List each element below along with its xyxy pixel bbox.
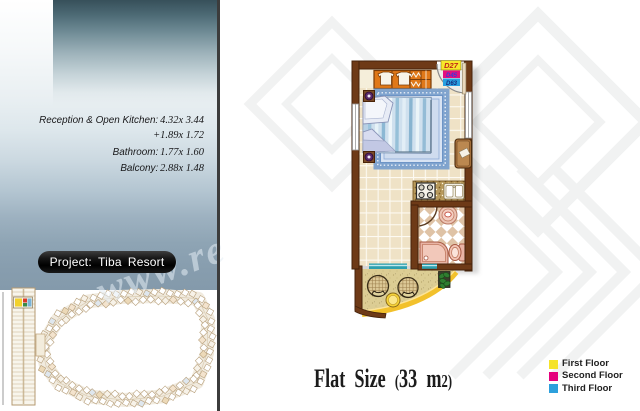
svg-text:D27: D27 <box>444 61 459 70</box>
svg-text:D45: D45 <box>446 73 458 79</box>
svg-text:D63: D63 <box>446 81 458 87</box>
